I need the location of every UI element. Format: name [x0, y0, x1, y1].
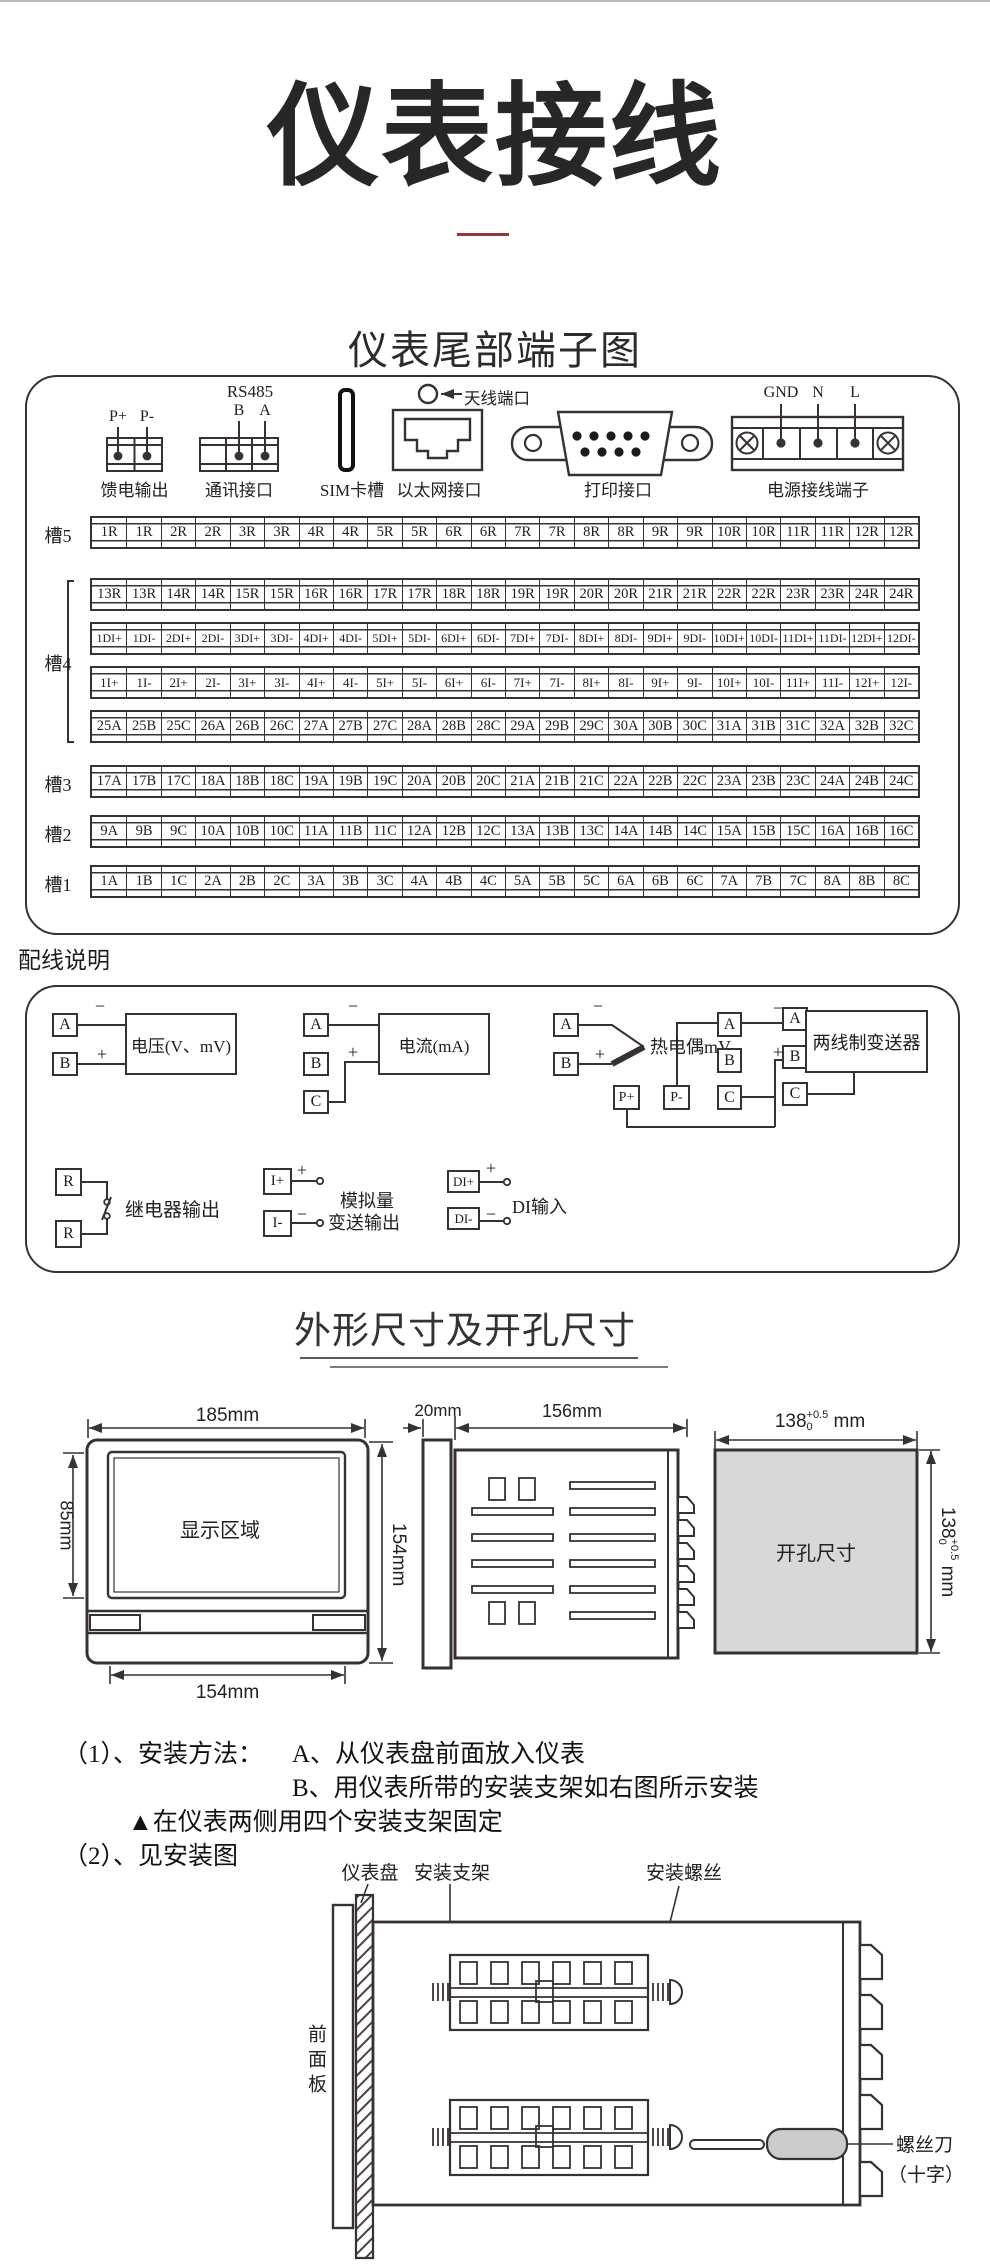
dim-front-bottom-width: 154mm	[150, 1682, 305, 1704]
tc-terminal-a: A	[553, 1013, 579, 1037]
terminal-cell: 14B	[643, 817, 677, 846]
terminal-cell: 8C	[884, 867, 918, 896]
terminal-cell: 19A	[299, 767, 333, 796]
terminal-cell: 2B	[230, 867, 264, 896]
voltage-input-box: 电压(V、mV)	[125, 1013, 237, 1075]
cutout-tol-upper: +0.5	[807, 1409, 829, 1421]
terminal-cell: 23R	[780, 580, 814, 609]
terminal-cell: 26B	[230, 712, 264, 741]
install-step1-a: A、从仪表盘前面放入仪表	[292, 1734, 585, 1770]
tx-terminal-pminus: P-	[663, 1085, 690, 1110]
terminal-cell: 16B	[849, 817, 883, 846]
rtd-terminal-c: C	[782, 1082, 808, 1106]
analog-terminal-iminus: I-	[263, 1210, 292, 1237]
voltage-terminal-a: A	[52, 1013, 78, 1037]
terminal-row: 1R1R2R2R3R3R4R4R5R5R6R6R7R7R8R8R9R9R10R1…	[90, 516, 920, 549]
comm-pin-b: B	[227, 402, 251, 420]
instrument-body	[373, 1922, 860, 2205]
terminal-cell: 18R	[436, 580, 470, 609]
terminal-cell: 13R	[92, 580, 126, 609]
panel-callout-label: 仪表盘	[337, 1858, 403, 1885]
terminal-cell: 3R	[264, 518, 298, 547]
current-input-box: 电流(mA)	[378, 1013, 490, 1075]
terminal-cell: 7R	[505, 518, 539, 547]
terminal-row: 13R13R14R14R15R15R16R16R17R17R18R18R19R1…	[90, 578, 920, 611]
terminal-cell: 13B	[539, 817, 573, 846]
terminal-cell: 9DI+	[643, 624, 677, 653]
terminal-cell: 9A	[92, 817, 126, 846]
terminal-cell: 6I-	[471, 668, 505, 697]
terminal-cell: 19R	[539, 580, 573, 609]
terminal-cell: 4DI+	[299, 624, 333, 653]
terminal-cell: 3I-	[264, 668, 298, 697]
terminal-cell: 1R	[126, 518, 160, 547]
page-top-border	[0, 0, 990, 2]
cutout-area-label: 开孔尺寸	[740, 1537, 892, 1566]
terminal-cell: 20C	[471, 767, 505, 796]
terminal-cell: 14C	[677, 817, 711, 846]
side-view-drawing	[403, 1416, 694, 1668]
current-terminal-b: B	[303, 1052, 329, 1076]
cutout-unit-2: mm	[937, 1566, 958, 1598]
bracket-callout-label: 安装支架	[413, 1858, 491, 1885]
terminal-cell: 8B	[849, 867, 883, 896]
current-terminal-a: A	[303, 1013, 329, 1037]
terminal-cell: 10R	[712, 518, 746, 547]
terminal-cell: 2R	[161, 518, 195, 547]
terminal-cell: 29C	[574, 712, 608, 741]
tc-minus-sign: −	[586, 996, 610, 1017]
analog-plus-sign: +	[292, 1160, 312, 1181]
terminal-cell: 9B	[126, 817, 160, 846]
terminal-cell: 23A	[712, 767, 746, 796]
terminal-cell: 7DI-	[539, 624, 573, 653]
terminal-cell: 2DI+	[161, 624, 195, 653]
di-minus-sign: −	[481, 1204, 501, 1225]
terminal-cell: 2I-	[195, 668, 229, 697]
heading-underline-2	[330, 1366, 668, 1368]
terminal-row: 9A9B9C10A10B10C11A11B11C12A12B12C13A13B1…	[90, 815, 920, 848]
terminal-cell: 21R	[677, 580, 711, 609]
terminal-cell: 13R	[126, 580, 160, 609]
terminal-cell: 14A	[608, 817, 642, 846]
terminal-cell: 3A	[299, 867, 333, 896]
dim-front-height: 154mm	[387, 1523, 409, 1583]
terminal-cell: 10I+	[712, 668, 746, 697]
terminal-cell: 22R	[746, 580, 780, 609]
slot-label-5: 槽5	[33, 522, 83, 548]
terminal-cell: 12C	[471, 817, 505, 846]
cutout-unit: mm	[834, 1411, 866, 1432]
terminal-cell: 7DI+	[505, 624, 539, 653]
terminal-cell: 10DI-	[746, 624, 780, 653]
terminal-cell: 4I-	[333, 668, 367, 697]
terminal-cell: 11R	[780, 518, 814, 547]
power-terminal-label: 电源接线端子	[760, 476, 876, 501]
terminal-cell: 28B	[436, 712, 470, 741]
terminal-cell: 1I-	[126, 668, 160, 697]
screw-callout-label: 安装螺丝	[645, 1858, 723, 1885]
terminal-cell: 1A	[92, 867, 126, 896]
terminal-cell: 15C	[780, 817, 814, 846]
terminal-cell: 30B	[643, 712, 677, 741]
di-input-label: DI输入	[512, 1193, 567, 1219]
terminal-cell: 10B	[230, 817, 264, 846]
terminal-cell: 12DI-	[884, 624, 918, 653]
terminal-cell: 2DI-	[195, 624, 229, 653]
voltage-plus-sign: +	[90, 1044, 114, 1065]
terminal-cell: 16C	[884, 817, 918, 846]
terminal-cell: 17A	[92, 767, 126, 796]
terminal-cell: 3DI-	[264, 624, 298, 653]
terminal-cell: 23R	[815, 580, 849, 609]
terminal-cell: 5I-	[402, 668, 436, 697]
terminal-cell: 9R	[677, 518, 711, 547]
terminal-cell: 21B	[539, 767, 573, 796]
terminal-cell: 24R	[849, 580, 883, 609]
terminal-cell: 6I+	[436, 668, 470, 697]
terminal-cell: 9DI-	[677, 624, 711, 653]
terminal-cell: 15A	[712, 817, 746, 846]
terminal-cell: 19R	[505, 580, 539, 609]
analog-minus-sign: −	[292, 1204, 312, 1225]
install-note: ▲在仪表两侧用四个安装支架固定	[128, 1802, 503, 1838]
terminal-row: 1A1B1C2A2B2C3A3B3C4A4B4C5A5B5C6A6B6C7A7B…	[90, 865, 920, 898]
terminal-cell: 7B	[746, 867, 780, 896]
terminal-cell: 31A	[712, 712, 746, 741]
di-terminal-plus: DI+	[447, 1170, 480, 1193]
cutout-tol-lower-2: 0	[936, 1539, 948, 1561]
terminal-cell: 20A	[402, 767, 436, 796]
terminal-cell: 6B	[643, 867, 677, 896]
terminal-cell: 15R	[264, 580, 298, 609]
terminal-cell: 16A	[815, 817, 849, 846]
terminal-cell: 12B	[436, 817, 470, 846]
cutout-tol-lower: 0	[807, 1421, 829, 1433]
terminal-cell: 30C	[677, 712, 711, 741]
wiring-section-label: 配线说明	[18, 941, 110, 975]
terminal-cell: 4C	[471, 867, 505, 896]
terminal-cell: 11DI+	[780, 624, 814, 653]
terminal-cell: 12R	[849, 518, 883, 547]
voltage-terminal-b: B	[52, 1052, 78, 1076]
terminal-cell: 4A	[402, 867, 436, 896]
terminal-cell: 4R	[299, 518, 333, 547]
current-plus-sign: +	[341, 1042, 365, 1063]
printer-port-label: 打印接口	[574, 476, 662, 501]
tc-terminal-b: B	[553, 1052, 579, 1076]
terminal-cell: 11B	[333, 817, 367, 846]
terminal-cell: 12DI+	[849, 624, 883, 653]
terminal-cell: 25B	[126, 712, 160, 741]
di-terminal-minus: DI-	[447, 1207, 480, 1230]
terminal-cell: 1DI-	[126, 624, 160, 653]
terminal-cell: 5C	[574, 867, 608, 896]
terminal-cell: 32A	[815, 712, 849, 741]
front-panel-bar	[333, 1905, 353, 2228]
terminal-cell: 32C	[884, 712, 918, 741]
terminal-cell: 18A	[195, 767, 229, 796]
tx-terminal-pplus: P+	[613, 1085, 640, 1110]
terminal-cell: 12A	[402, 817, 436, 846]
terminal-cell: 8DI+	[574, 624, 608, 653]
terminal-cell: 12R	[884, 518, 918, 547]
terminal-cell: 17R	[367, 580, 401, 609]
relay-output-label: 继电器输出	[125, 1195, 220, 1222]
tx-plus-sign: +	[768, 1042, 788, 1063]
dim-cutout-height: 138+0.50 mm	[935, 1482, 959, 1622]
terminal-cell: 6DI-	[471, 624, 505, 653]
feed-pin-plus: P+	[104, 408, 132, 426]
cutout-value-2: 138	[937, 1507, 958, 1539]
terminal-cell: 3B	[333, 867, 367, 896]
mounting-bracket	[433, 1955, 682, 2030]
power-pin-l: L	[840, 384, 870, 402]
tx-terminal-b: B	[717, 1048, 742, 1073]
relay-terminal-r1: R	[55, 1168, 82, 1196]
terminal-cell: 2I+	[161, 668, 195, 697]
dim-cutout-width: 138+0.50 mm	[745, 1410, 895, 1434]
terminal-cell: 11C	[367, 817, 401, 846]
comm-label: 通讯接口	[196, 476, 282, 501]
terminal-cell: 22R	[712, 580, 746, 609]
terminal-cell: 22A	[608, 767, 642, 796]
terminal-cell: 11R	[815, 518, 849, 547]
terminal-cell: 2R	[195, 518, 229, 547]
terminal-cell: 20R	[608, 580, 642, 609]
terminal-cell: 30A	[608, 712, 642, 741]
terminal-cell: 18B	[230, 767, 264, 796]
slot-label-2: 槽2	[33, 821, 83, 847]
rs485-label: RS485	[205, 382, 295, 402]
terminal-cell: 20B	[436, 767, 470, 796]
analog-output-label-2: 变送输出	[320, 1209, 408, 1235]
terminal-cell: 5R	[367, 518, 401, 547]
terminal-cell: 5R	[402, 518, 436, 547]
terminal-cell: 8R	[608, 518, 642, 547]
terminal-cell: 25C	[161, 712, 195, 741]
power-pin-gnd: GND	[763, 384, 799, 402]
install-step1-label: （1）、安装方法：	[63, 1734, 263, 1770]
tx-minus-sign: −	[768, 998, 788, 1019]
terminal-cell: 11I+	[780, 668, 814, 697]
terminal-cell: 17C	[161, 767, 195, 796]
dim-bezel-depth: 20mm	[405, 1401, 471, 1421]
terminal-row: 1I+1I-2I+2I-3I+3I-4I+4I-5I+5I-6I+6I-7I+7…	[90, 666, 920, 699]
terminal-cell: 31C	[780, 712, 814, 741]
terminal-cell: 17R	[402, 580, 436, 609]
terminal-cell: 20R	[574, 580, 608, 609]
tx-terminal-c: C	[717, 1085, 742, 1110]
terminal-cell: 8DI-	[608, 624, 642, 653]
terminal-cell: 5DI-	[402, 624, 436, 653]
feed-pin-minus: P-	[133, 408, 161, 426]
mounting-diagram	[333, 1884, 893, 2258]
cutout-tol-upper-2: +0.5	[948, 1539, 960, 1561]
terminal-cell: 24C	[884, 767, 918, 796]
terminal-cell: 15R	[230, 580, 264, 609]
terminal-cell: 11A	[299, 817, 333, 846]
terminal-cell: 14R	[161, 580, 195, 609]
slot-label-1: 槽1	[33, 871, 83, 897]
terminal-cell: 4DI-	[333, 624, 367, 653]
sim-slot-label: SIM卡槽	[310, 476, 394, 501]
terminal-cell: 7A	[712, 867, 746, 896]
terminal-cell: 7I+	[505, 668, 539, 697]
dim-front-width: 185mm	[150, 1405, 305, 1427]
terminal-section-heading: 仪表尾部端子图	[0, 318, 990, 376]
slot-label-3: 槽3	[33, 771, 83, 797]
terminal-cell: 11I-	[815, 668, 849, 697]
install-step2-label: （2）、见安装图	[63, 1836, 238, 1872]
terminal-cell: 3I+	[230, 668, 264, 697]
dimensions-section-heading: 外形尺寸及开孔尺寸	[0, 1300, 930, 1354]
dim-body-depth: 156mm	[520, 1401, 624, 1422]
terminal-cell: 13A	[505, 817, 539, 846]
terminal-cell: 11DI-	[815, 624, 849, 653]
current-terminal-c: C	[303, 1090, 329, 1114]
terminal-cell: 6C	[677, 867, 711, 896]
analog-terminal-iplus: I+	[263, 1168, 292, 1195]
manual-page: 仪表接线 仪表尾部端子图	[0, 0, 990, 2264]
terminal-cell: 16R	[333, 580, 367, 609]
terminal-cell: 10DI+	[712, 624, 746, 653]
terminal-cell: 8I-	[608, 668, 642, 697]
panel-hatch-strip	[356, 1895, 373, 2258]
terminal-row: 17A17B17C18A18B18C19A19B19C20A20B20C21A2…	[90, 765, 920, 798]
terminal-cell: 3R	[230, 518, 264, 547]
heading-underline-1	[300, 1357, 638, 1359]
terminal-cell: 7I-	[539, 668, 573, 697]
terminal-cell: 2A	[195, 867, 229, 896]
terminal-cell: 9C	[161, 817, 195, 846]
terminal-cell: 12I+	[849, 668, 883, 697]
terminal-row: 1DI+1DI-2DI+2DI-3DI+3DI-4DI+4DI-5DI+5DI-…	[90, 622, 920, 655]
screwdriver-label-2: （十字）	[888, 2160, 972, 2187]
terminal-cell: 1C	[161, 867, 195, 896]
terminal-cell: 26A	[195, 712, 229, 741]
terminal-cell: 6A	[608, 867, 642, 896]
terminal-cell: 12I-	[884, 668, 918, 697]
terminal-cell: 19B	[333, 767, 367, 796]
front-view-drawing	[63, 1419, 393, 1684]
cutout-value: 138	[775, 1411, 807, 1432]
terminal-cell: 21C	[574, 767, 608, 796]
screwdriver-handle	[767, 2129, 847, 2159]
terminal-cell: 5A	[505, 867, 539, 896]
terminal-cell: 19C	[367, 767, 401, 796]
title-accent-divider	[457, 233, 509, 236]
terminal-cell: 10I-	[746, 668, 780, 697]
terminal-cell: 18C	[264, 767, 298, 796]
terminal-cell: 31B	[746, 712, 780, 741]
di-plus-sign: +	[481, 1158, 501, 1179]
terminal-cell: 22B	[643, 767, 677, 796]
terminal-cell: 32B	[849, 712, 883, 741]
terminal-bumps	[860, 1945, 882, 2196]
current-minus-sign: −	[341, 996, 365, 1017]
terminal-cell: 23B	[746, 767, 780, 796]
tc-plus-sign: +	[588, 1044, 612, 1065]
terminal-cell: 5B	[539, 867, 573, 896]
terminal-cell: 28A	[402, 712, 436, 741]
cutout-tolerance-2: +0.50	[936, 1539, 960, 1561]
terminal-cell: 14R	[195, 580, 229, 609]
terminal-cell: 24A	[815, 767, 849, 796]
terminal-cell: 1I+	[92, 668, 126, 697]
terminal-cell: 16R	[299, 580, 333, 609]
terminal-cell: 4I+	[299, 668, 333, 697]
terminal-cell: 1B	[126, 867, 160, 896]
terminal-cell: 1DI+	[92, 624, 126, 653]
terminal-cell: 8A	[815, 867, 849, 896]
slot-label-4: 槽4	[33, 650, 83, 676]
feed-output-label: 馈电输出	[92, 476, 177, 501]
terminal-cell: 21A	[505, 767, 539, 796]
terminal-cell: 15B	[746, 817, 780, 846]
terminal-cell: 8R	[574, 518, 608, 547]
terminal-cell: 25A	[92, 712, 126, 741]
terminal-cell: 7C	[780, 867, 814, 896]
terminal-cell: 5DI+	[367, 624, 401, 653]
ethernet-label: 以太网接口	[392, 476, 486, 501]
terminal-cell: 6R	[436, 518, 470, 547]
terminal-cell: 4B	[436, 867, 470, 896]
terminal-cell: 6DI+	[436, 624, 470, 653]
screwdriver-shaft	[690, 2140, 764, 2149]
terminal-cell: 18R	[471, 580, 505, 609]
terminal-cell: 27C	[367, 712, 401, 741]
terminal-cell: 17B	[126, 767, 160, 796]
terminal-cell: 13C	[574, 817, 608, 846]
terminal-cell: 10R	[746, 518, 780, 547]
terminal-cell: 23C	[780, 767, 814, 796]
terminal-cell: 10A	[195, 817, 229, 846]
cutout-tolerance: +0.50	[807, 1409, 829, 1433]
terminal-cell: 24B	[849, 767, 883, 796]
terminal-cell: 3C	[367, 867, 401, 896]
terminal-cell: 1R	[92, 518, 126, 547]
two-wire-transmitter-box: 两线制变送器	[805, 1010, 928, 1073]
screwdriver-label-1: 螺丝刀	[896, 2130, 968, 2157]
terminal-cell: 9R	[643, 518, 677, 547]
terminal-cell: 24R	[884, 580, 918, 609]
terminal-cell: 2C	[264, 867, 298, 896]
terminal-cell: 29B	[539, 712, 573, 741]
tx-terminal-a: A	[717, 1012, 742, 1037]
front-panel-label: 前面板	[302, 2005, 329, 2117]
terminal-cell: 8I+	[574, 668, 608, 697]
dim-display-height: 85mm	[56, 1496, 77, 1556]
terminal-cell: 29A	[505, 712, 539, 741]
relay-terminal-r2: R	[55, 1220, 82, 1248]
terminal-cell: 21R	[643, 580, 677, 609]
page-title: 仪表接线	[0, 78, 990, 196]
voltage-minus-sign: −	[88, 996, 112, 1017]
terminal-diagram-panel	[25, 375, 960, 935]
power-pin-n: N	[803, 384, 833, 402]
terminal-cell: 9I-	[677, 668, 711, 697]
terminal-cell: 22C	[677, 767, 711, 796]
terminal-cell: 4R	[333, 518, 367, 547]
terminal-cell: 5I+	[367, 668, 401, 697]
terminal-cell: 28C	[471, 712, 505, 741]
terminal-cell: 3DI+	[230, 624, 264, 653]
terminal-cell: 26C	[264, 712, 298, 741]
antenna-port-label: 天线端口	[464, 385, 544, 409]
terminal-row: 25A25B25C26A26B26C27A27B27C28A28B28C29A2…	[90, 710, 920, 743]
terminal-cell: 10C	[264, 817, 298, 846]
